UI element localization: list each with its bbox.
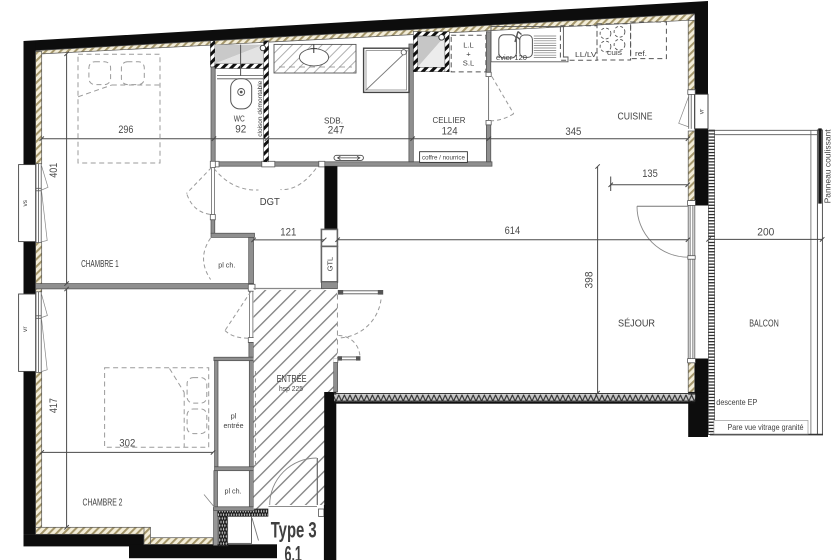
svg-text:CELLIER: CELLIER [433, 115, 466, 125]
svg-text:CHAMBRE 2: CHAMBRE 2 [83, 497, 123, 508]
svg-text:pl: pl [231, 412, 237, 421]
svg-text:évier 120: évier 120 [496, 53, 527, 62]
svg-text:Pare vue vitrage granité: Pare vue vitrage granité [728, 422, 804, 432]
svg-text:pl ch.: pl ch. [225, 486, 242, 495]
svg-text:BALCON: BALCON [749, 319, 779, 330]
svg-text:+: + [466, 50, 471, 59]
svg-text:vs: vs [22, 199, 29, 206]
svg-text:614: 614 [505, 225, 521, 237]
svg-text:GTL: GTL [326, 257, 335, 271]
svg-text:pl ch.: pl ch. [218, 260, 235, 269]
svg-text:DGT: DGT [260, 197, 281, 208]
svg-text:401: 401 [48, 163, 60, 178]
svg-text:302: 302 [119, 438, 135, 450]
svg-text:descente EP: descente EP [716, 397, 757, 407]
svg-text:coffre / nourrice: coffre / nourrice [422, 155, 465, 162]
svg-text:LL/LV: LL/LV [575, 50, 597, 59]
svg-text:398: 398 [583, 272, 595, 289]
svg-text:345: 345 [565, 126, 581, 138]
svg-text:WC: WC [234, 114, 245, 124]
svg-text:Panneau coulissant: Panneau coulissant [823, 129, 832, 204]
svg-text:CUISINE: CUISINE [618, 111, 653, 122]
svg-text:121: 121 [280, 227, 296, 239]
svg-text:entrée: entrée [224, 421, 244, 430]
svg-text:vr: vr [22, 326, 29, 332]
svg-text:cloison démontable: cloison démontable [257, 80, 264, 137]
svg-text:124: 124 [442, 125, 458, 137]
svg-text:vr: vr [698, 108, 705, 114]
svg-text:247: 247 [328, 124, 345, 136]
svg-text:ENTRÉE: ENTRÉE [277, 372, 307, 385]
svg-text:L.L: L.L [463, 41, 474, 50]
svg-text:cuis: cuis [607, 48, 622, 57]
svg-text:Type 3: Type 3 [271, 517, 317, 542]
svg-text:200: 200 [757, 227, 774, 239]
svg-text:S.L: S.L [463, 59, 474, 68]
svg-text:417: 417 [48, 398, 60, 413]
svg-text:92: 92 [235, 123, 246, 135]
svg-text:296: 296 [118, 124, 133, 136]
svg-text:ref.: ref. [635, 49, 647, 58]
svg-text:CHAMBRE 1: CHAMBRE 1 [81, 259, 119, 270]
svg-text:135: 135 [642, 168, 658, 180]
svg-text:SÉJOUR: SÉJOUR [618, 317, 655, 330]
svg-text:6.1: 6.1 [284, 542, 302, 560]
svg-text:hsp 225: hsp 225 [279, 384, 303, 393]
